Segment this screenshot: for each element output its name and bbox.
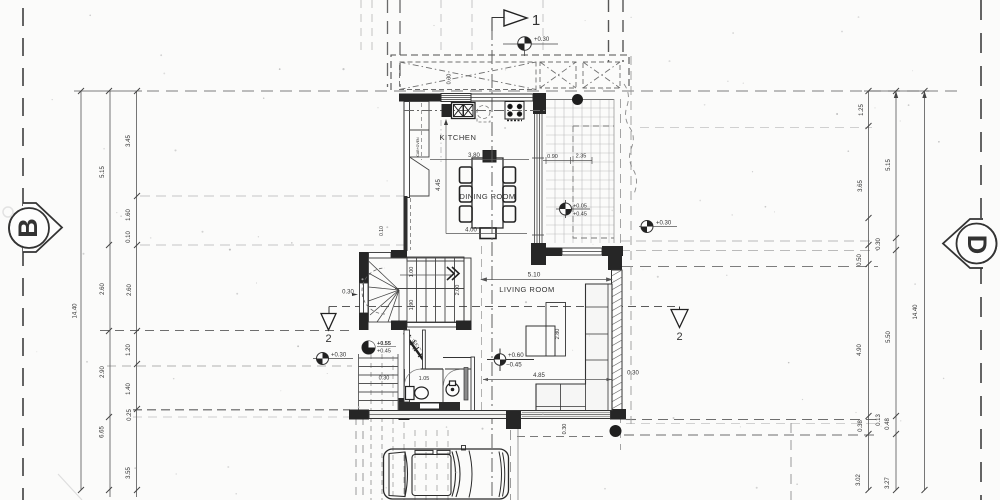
svg-text:14.40: 14.40 xyxy=(73,303,79,319)
svg-text:−0.45: −0.45 xyxy=(506,362,522,369)
svg-text:0.38: 0.38 xyxy=(858,420,864,432)
svg-text:0.13: 0.13 xyxy=(876,414,882,426)
svg-text:3.02: 3.02 xyxy=(856,474,862,486)
svg-text:14.40: 14.40 xyxy=(913,304,919,320)
svg-text:0.90: 0.90 xyxy=(547,154,558,160)
svg-text:1.90: 1.90 xyxy=(409,300,415,311)
svg-text:1.00: 1.00 xyxy=(409,267,415,278)
svg-text:0.10: 0.10 xyxy=(126,231,132,243)
svg-text:1.60: 1.60 xyxy=(126,209,132,221)
svg-text:2.00: 2.00 xyxy=(455,285,461,296)
svg-text:+0.60: +0.60 xyxy=(508,352,524,359)
svg-text:+0.30: +0.30 xyxy=(534,37,550,43)
svg-text:+0.05: +0.05 xyxy=(573,204,587,210)
svg-text:0.48: 0.48 xyxy=(885,418,891,430)
svg-text:3.27: 3.27 xyxy=(885,477,891,489)
svg-text:1.20: 1.20 xyxy=(126,344,132,356)
svg-text:1.40: 1.40 xyxy=(126,383,132,395)
svg-text:5.15: 5.15 xyxy=(886,159,892,171)
svg-text:0.25: 0.25 xyxy=(127,409,133,421)
svg-text:3.45: 3.45 xyxy=(126,135,132,147)
svg-text:2.60: 2.60 xyxy=(100,283,106,295)
svg-text:5.10: 5.10 xyxy=(528,272,541,279)
svg-text:1: 1 xyxy=(532,12,540,29)
svg-text:KITCHEN: KITCHEN xyxy=(439,133,476,142)
svg-text:+0.30: +0.30 xyxy=(331,353,347,359)
svg-text:0.30: 0.30 xyxy=(379,376,390,382)
svg-text:0.30: 0.30 xyxy=(627,371,639,377)
svg-text:1.25: 1.25 xyxy=(413,340,419,351)
svg-text:+0.45: +0.45 xyxy=(377,349,391,355)
svg-text:4.45: 4.45 xyxy=(436,179,442,191)
svg-text:3.80: 3.80 xyxy=(468,153,480,159)
svg-text:2.90: 2.90 xyxy=(100,366,106,378)
svg-text:CAB+OVEN: CAB+OVEN xyxy=(416,137,420,157)
svg-text:1.25: 1.25 xyxy=(859,104,865,116)
svg-text:2.60: 2.60 xyxy=(127,284,133,296)
svg-text:4.90: 4.90 xyxy=(857,344,863,356)
svg-text:0.30: 0.30 xyxy=(876,238,882,250)
svg-text:+0.55: +0.55 xyxy=(377,341,391,347)
svg-text:3.55: 3.55 xyxy=(126,467,132,479)
svg-text:D: D xyxy=(962,235,992,255)
svg-text:B: B xyxy=(13,218,43,238)
svg-text:2.35: 2.35 xyxy=(576,154,587,160)
svg-text:2: 2 xyxy=(325,333,331,345)
svg-text:6.65: 6.65 xyxy=(100,426,106,438)
svg-text:LIVING ROOM: LIVING ROOM xyxy=(499,285,555,294)
svg-text:5.50: 5.50 xyxy=(886,331,892,343)
svg-text:4.85: 4.85 xyxy=(533,373,545,379)
svg-text:1.05: 1.05 xyxy=(419,376,430,382)
svg-text:0.30: 0.30 xyxy=(562,424,568,435)
svg-text:2: 2 xyxy=(676,331,682,343)
svg-text:4.00: 4.00 xyxy=(465,228,477,234)
svg-text:DINING ROOM: DINING ROOM xyxy=(459,192,515,201)
svg-text:5.15: 5.15 xyxy=(100,166,106,178)
svg-text:0.30: 0.30 xyxy=(447,74,453,85)
svg-text:+0.45: +0.45 xyxy=(573,212,587,218)
svg-text:0.50: 0.50 xyxy=(857,254,863,266)
svg-text:3.65: 3.65 xyxy=(858,180,864,192)
svg-text:0.10: 0.10 xyxy=(379,226,385,236)
svg-text:+0.30: +0.30 xyxy=(656,221,672,227)
svg-text:2.80: 2.80 xyxy=(555,329,561,340)
